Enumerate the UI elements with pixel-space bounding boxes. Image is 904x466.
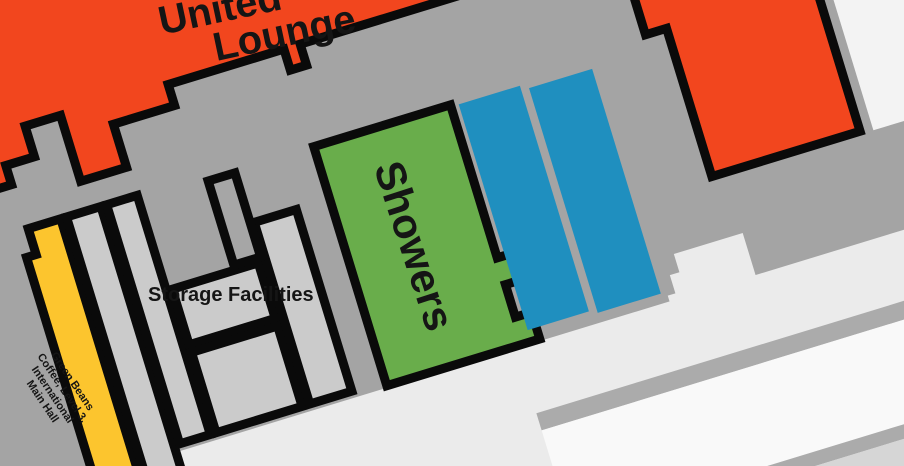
- storage-facilities-label: Storage Facilities: [148, 284, 314, 306]
- terminal-map-svg: United Lounge Showers Storage Facilities…: [0, 0, 904, 466]
- airport-terminal-map: United Lounge Showers Storage Facilities…: [0, 0, 904, 466]
